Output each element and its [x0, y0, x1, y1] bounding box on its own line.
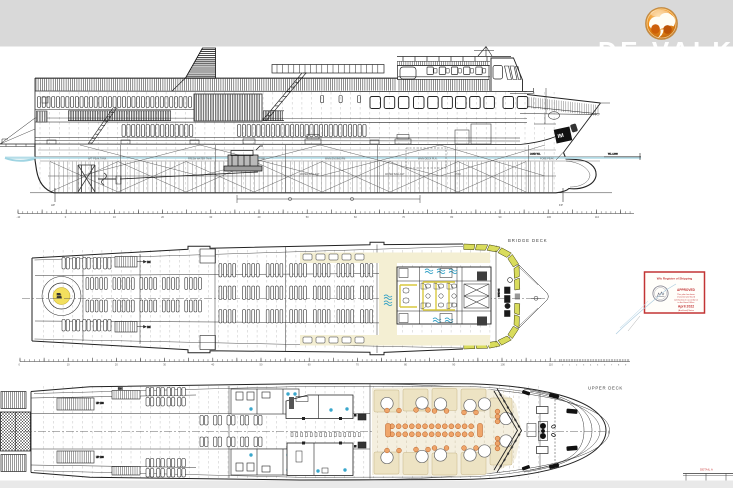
- svg-text:-10: -10: [17, 215, 21, 219]
- svg-text:reviewed and found: reviewed and found: [677, 296, 696, 299]
- svg-text:Wls Register of Shipping: Wls Register of Shipping: [657, 277, 693, 281]
- svg-text:100: 100: [501, 363, 506, 367]
- svg-text:DETAIL A: DETAIL A: [700, 468, 713, 472]
- svg-text:This plan has been: This plan has been: [677, 294, 695, 296]
- svg-text:110: 110: [595, 215, 600, 219]
- svg-text:FP: FP: [559, 203, 563, 207]
- svg-text:110: 110: [549, 363, 554, 367]
- svg-text:FRESH WATER TANK: FRESH WATER TANK: [188, 158, 212, 161]
- svg-text:AP: AP: [51, 203, 55, 207]
- svg-text:(Auckland) Notes: (Auckland) Notes: [678, 309, 694, 312]
- svg-text:DN: DN: [147, 326, 151, 329]
- svg-text:DN: DN: [147, 261, 151, 264]
- svg-text:100: 100: [547, 215, 552, 219]
- svg-text:BRIDGE: BRIDGE: [499, 288, 501, 297]
- svg-text:UP 100: UP 100: [96, 403, 104, 405]
- svg-text:UPPER DECK: UPPER DECK: [588, 386, 623, 391]
- svg-text:MAIN ENGINE RM: MAIN ENGINE RM: [325, 158, 345, 161]
- svg-text:LOAD W.L: LOAD W.L: [530, 153, 541, 156]
- svg-text:FORE PEAK: FORE PEAK: [540, 158, 554, 161]
- svg-text:April 2022: April 2022: [678, 305, 694, 309]
- svg-text:W.L 4.000: W.L 4.000: [608, 154, 619, 156]
- svg-text:WATER BALLAST: WATER BALLAST: [385, 173, 405, 176]
- svg-text:satisfactory in accordance: satisfactory in accordance: [674, 298, 699, 301]
- svg-text:ESC: ESC: [118, 389, 123, 391]
- svg-text:APPROVED: APPROVED: [677, 288, 696, 292]
- svg-text:MAIN DECK PLN: MAIN DECK PLN: [418, 158, 437, 161]
- svg-text:WATER BALLAST: WATER BALLAST: [300, 173, 320, 176]
- svg-text:VOID: VOID: [455, 173, 461, 176]
- svg-text:AFT PEAK TANK: AFT PEAK TANK: [88, 158, 107, 161]
- svg-text:DE VALK: DE VALK: [598, 36, 733, 66]
- svg-text:BRIDGE DECK: BRIDGE DECK: [508, 238, 548, 243]
- svg-text:UP 100: UP 100: [96, 457, 104, 459]
